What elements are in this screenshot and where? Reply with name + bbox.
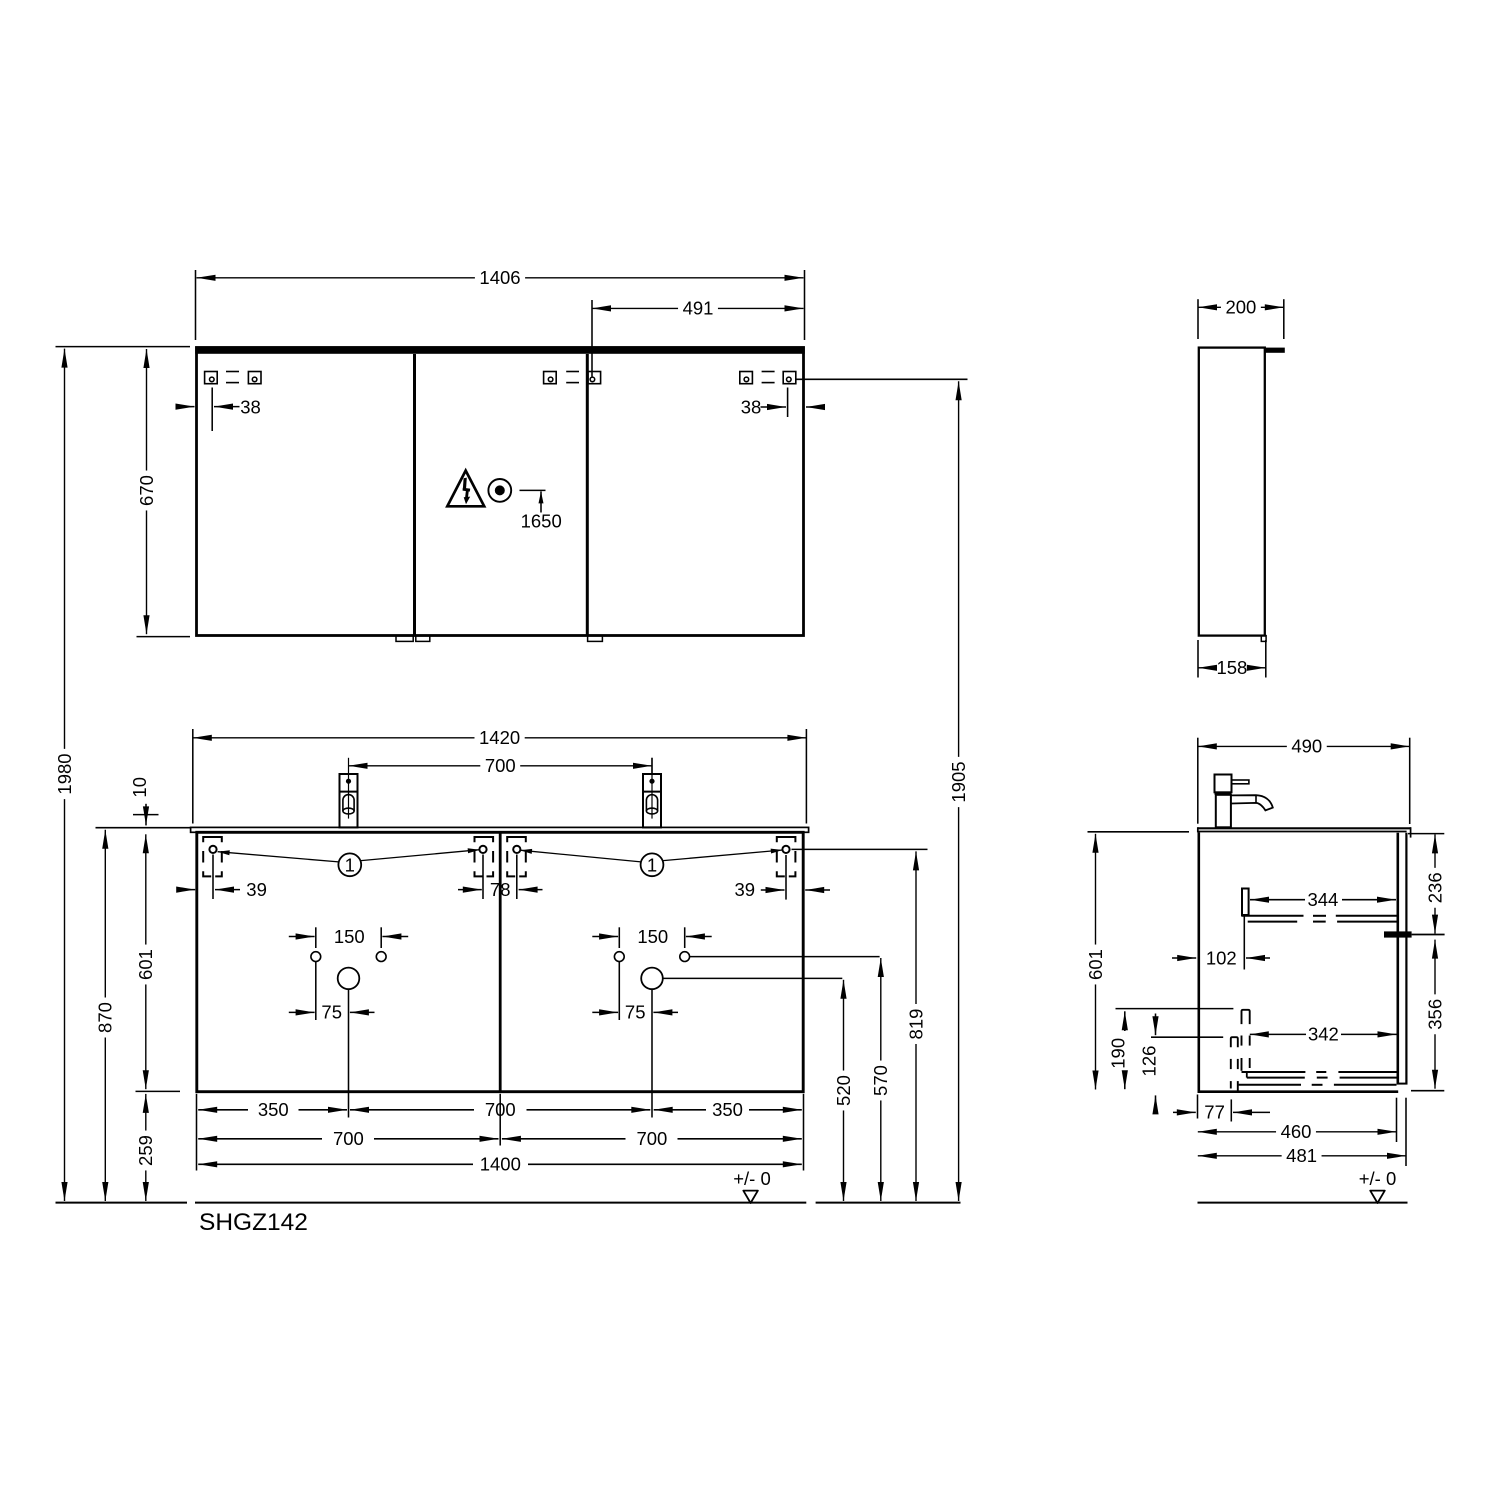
svg-text:350: 350 — [258, 1099, 289, 1120]
svg-text:10: 10 — [129, 777, 150, 798]
svg-text:490: 490 — [1291, 736, 1322, 757]
svg-text:491: 491 — [683, 298, 714, 319]
svg-text:1: 1 — [345, 855, 355, 876]
svg-text:1420: 1420 — [479, 727, 520, 748]
svg-text:1905: 1905 — [948, 761, 969, 802]
svg-text:150: 150 — [334, 926, 365, 947]
svg-text:190: 190 — [1108, 1038, 1129, 1069]
svg-text:1406: 1406 — [479, 267, 520, 288]
svg-text:342: 342 — [1308, 1024, 1339, 1045]
svg-text:819: 819 — [905, 1009, 926, 1040]
svg-text:700: 700 — [485, 1099, 516, 1120]
svg-text:259: 259 — [135, 1135, 156, 1166]
svg-text:+/- 0: +/- 0 — [733, 1168, 771, 1189]
svg-text:1980: 1980 — [54, 753, 75, 794]
svg-text:601: 601 — [1085, 949, 1106, 980]
svg-text:870: 870 — [95, 1002, 116, 1033]
svg-text:78: 78 — [490, 879, 511, 900]
svg-text:39: 39 — [246, 879, 267, 900]
svg-text:126: 126 — [1138, 1046, 1159, 1077]
svg-text:38: 38 — [741, 397, 762, 418]
svg-text:601: 601 — [135, 949, 156, 980]
svg-text:700: 700 — [636, 1128, 667, 1149]
svg-text:77: 77 — [1204, 1102, 1225, 1123]
svg-text:102: 102 — [1206, 947, 1237, 968]
svg-text:75: 75 — [321, 1002, 342, 1023]
svg-text:350: 350 — [712, 1099, 743, 1120]
svg-text:700: 700 — [333, 1128, 364, 1149]
svg-text:460: 460 — [1281, 1121, 1312, 1142]
svg-text:481: 481 — [1286, 1145, 1317, 1166]
svg-text:1: 1 — [647, 855, 657, 876]
svg-text:344: 344 — [1307, 889, 1338, 910]
svg-text:570: 570 — [870, 1065, 891, 1096]
svg-text:+/- 0: +/- 0 — [1359, 1168, 1397, 1189]
svg-text:158: 158 — [1216, 657, 1247, 678]
svg-text:1400: 1400 — [480, 1154, 521, 1175]
svg-text:38: 38 — [240, 396, 261, 417]
svg-text:39: 39 — [735, 879, 756, 900]
svg-text:356: 356 — [1424, 999, 1445, 1030]
svg-text:520: 520 — [833, 1075, 854, 1106]
svg-text:75: 75 — [625, 1002, 646, 1023]
svg-text:236: 236 — [1424, 872, 1445, 903]
svg-text:1650: 1650 — [521, 511, 562, 532]
svg-text:670: 670 — [136, 475, 157, 506]
svg-text:150: 150 — [637, 926, 668, 947]
svg-text:SHGZ142: SHGZ142 — [199, 1209, 308, 1236]
svg-text:700: 700 — [485, 755, 516, 776]
svg-text:200: 200 — [1225, 297, 1256, 318]
